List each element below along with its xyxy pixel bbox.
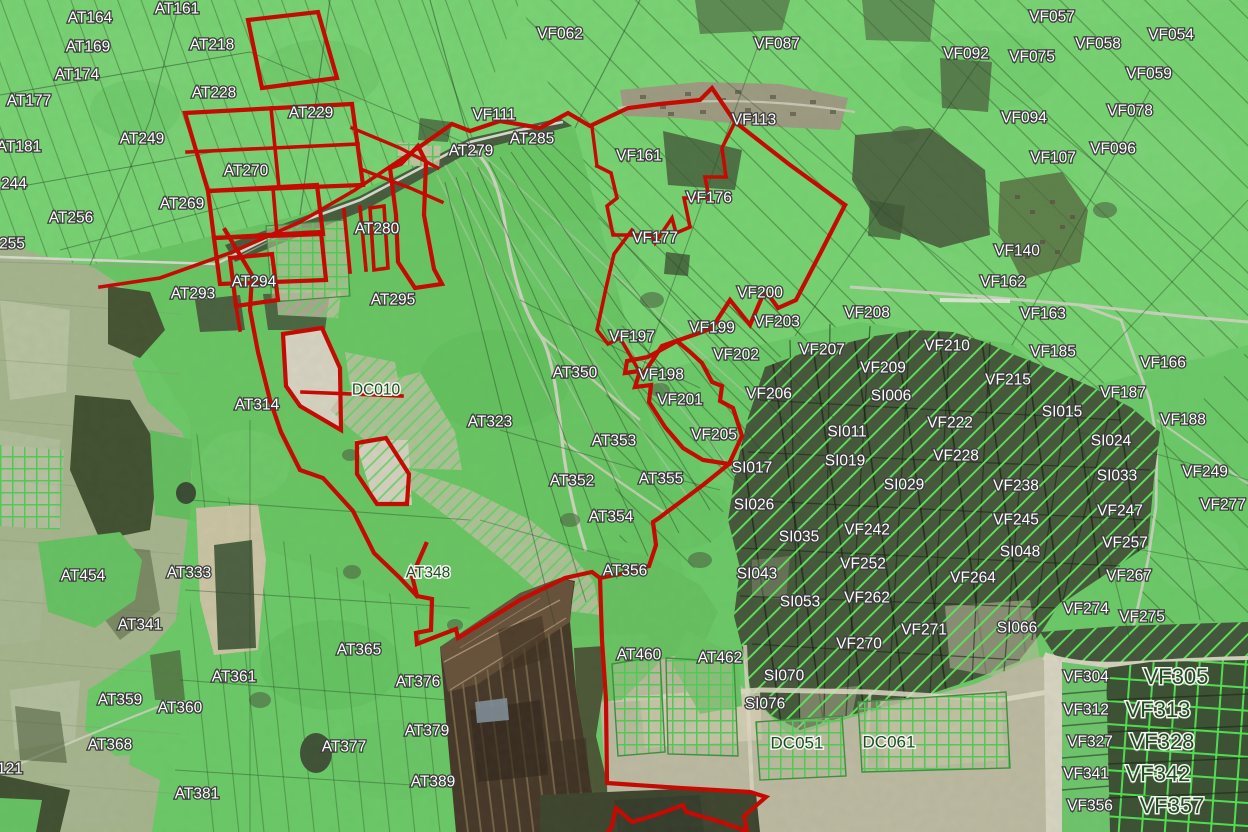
svg-text:VF262: VF262 bbox=[844, 590, 890, 607]
svg-text:SI066: SI066 bbox=[997, 620, 1038, 637]
svg-text:VF327: VF327 bbox=[1067, 734, 1113, 751]
svg-text:VF206: VF206 bbox=[746, 386, 792, 403]
svg-text:SI026: SI026 bbox=[734, 497, 775, 514]
svg-text:VF054: VF054 bbox=[1148, 27, 1194, 44]
svg-text:VF313: VF313 bbox=[1126, 697, 1191, 722]
svg-text:AT350: AT350 bbox=[553, 365, 598, 382]
svg-text:VF277: VF277 bbox=[1200, 497, 1246, 514]
svg-text:SI076: SI076 bbox=[745, 696, 786, 713]
svg-text:AT269: AT269 bbox=[160, 196, 205, 213]
svg-text:VF249: VF249 bbox=[1182, 464, 1228, 481]
svg-text:VF059: VF059 bbox=[1126, 66, 1172, 83]
svg-text:AT355: AT355 bbox=[639, 471, 684, 488]
svg-text:VF245: VF245 bbox=[993, 512, 1039, 529]
svg-text:AT229: AT229 bbox=[289, 105, 334, 122]
svg-text:SI043: SI043 bbox=[737, 566, 778, 583]
svg-text:VF205: VF205 bbox=[691, 427, 737, 444]
svg-text:AT389: AT389 bbox=[411, 774, 456, 791]
svg-text:VF274: VF274 bbox=[1063, 601, 1109, 618]
svg-text:AT177: AT177 bbox=[7, 93, 52, 110]
svg-text:VF305: VF305 bbox=[1144, 664, 1209, 689]
svg-text:VF215: VF215 bbox=[985, 372, 1031, 389]
svg-text:AT454: AT454 bbox=[61, 568, 106, 585]
svg-text:VF201: VF201 bbox=[657, 392, 703, 409]
svg-text:VF222: VF222 bbox=[927, 415, 973, 432]
svg-text:AT295: AT295 bbox=[371, 292, 416, 309]
svg-text:VF312: VF312 bbox=[1063, 702, 1109, 719]
svg-text:AT294: AT294 bbox=[232, 274, 277, 291]
svg-text:VF075: VF075 bbox=[1009, 49, 1055, 66]
svg-text:VF113: VF113 bbox=[732, 112, 777, 129]
svg-text:VF078: VF078 bbox=[1107, 103, 1153, 120]
svg-text:VF087: VF087 bbox=[754, 36, 800, 53]
svg-text:AT228: AT228 bbox=[192, 85, 237, 102]
svg-text:SI019: SI019 bbox=[825, 453, 866, 470]
svg-text:AT333: AT333 bbox=[167, 565, 212, 582]
svg-text:DC061: DC061 bbox=[863, 733, 916, 752]
svg-text:DC051: DC051 bbox=[771, 734, 824, 753]
svg-text:VF342: VF342 bbox=[1126, 761, 1191, 786]
svg-text:VF166: VF166 bbox=[1140, 355, 1186, 372]
svg-text:VF199: VF199 bbox=[689, 320, 735, 337]
svg-text:AT174: AT174 bbox=[55, 67, 100, 84]
svg-text:AT379: AT379 bbox=[405, 723, 450, 740]
svg-text:SI048: SI048 bbox=[1000, 544, 1041, 561]
svg-text:VF197: VF197 bbox=[609, 329, 655, 346]
svg-text:AT341: AT341 bbox=[118, 617, 163, 634]
svg-text:VF096: VF096 bbox=[1090, 141, 1136, 158]
svg-text:SI033: SI033 bbox=[1097, 468, 1138, 485]
svg-text:VF198: VF198 bbox=[638, 367, 684, 384]
svg-text:AT164: AT164 bbox=[68, 10, 113, 27]
svg-text:VF252: VF252 bbox=[840, 556, 886, 573]
svg-text:VF202: VF202 bbox=[713, 347, 759, 364]
svg-text:AT270: AT270 bbox=[224, 163, 269, 180]
svg-text:VF176: VF176 bbox=[686, 190, 732, 207]
svg-text:VF356: VF356 bbox=[1067, 798, 1113, 815]
svg-text:121: 121 bbox=[0, 761, 23, 778]
svg-text:AT361: AT361 bbox=[212, 669, 257, 686]
svg-text:VF062: VF062 bbox=[537, 26, 583, 43]
svg-text:VF200: VF200 bbox=[737, 285, 783, 302]
svg-text:VF238: VF238 bbox=[993, 478, 1039, 495]
svg-text:AT377: AT377 bbox=[322, 739, 367, 756]
svg-text:VF228: VF228 bbox=[933, 448, 979, 465]
svg-text:VF094: VF094 bbox=[1001, 110, 1047, 127]
svg-text:VF185: VF185 bbox=[1030, 344, 1076, 361]
svg-text:AT169: AT169 bbox=[66, 39, 111, 56]
svg-text:VF057: VF057 bbox=[1029, 9, 1075, 26]
svg-text:AT368: AT368 bbox=[88, 737, 133, 754]
svg-text:AT249: AT249 bbox=[120, 131, 165, 148]
svg-text:VF247: VF247 bbox=[1097, 503, 1143, 520]
svg-text:AT279: AT279 bbox=[449, 143, 494, 160]
svg-text:VF270: VF270 bbox=[836, 636, 882, 653]
svg-text:AT293: AT293 bbox=[171, 286, 216, 303]
svg-text:SI029: SI029 bbox=[884, 477, 925, 494]
svg-text:SI035: SI035 bbox=[779, 529, 820, 546]
svg-text:SI070: SI070 bbox=[764, 668, 805, 685]
svg-text:244: 244 bbox=[1, 176, 27, 193]
svg-text:VF357: VF357 bbox=[1140, 793, 1205, 818]
svg-text:VF177: VF177 bbox=[632, 230, 678, 247]
svg-text:AT360: AT360 bbox=[158, 700, 203, 717]
svg-text:SI015: SI015 bbox=[1042, 404, 1083, 421]
svg-text:AT256: AT256 bbox=[49, 210, 94, 227]
svg-text:VF203: VF203 bbox=[754, 314, 800, 331]
svg-text:VF328: VF328 bbox=[1130, 729, 1195, 754]
svg-text:VF163: VF163 bbox=[1020, 306, 1066, 323]
svg-text:AT460: AT460 bbox=[617, 647, 662, 664]
svg-text:VF267: VF267 bbox=[1106, 568, 1152, 585]
svg-text:SI011: SI011 bbox=[827, 424, 866, 441]
svg-text:VF207: VF207 bbox=[799, 342, 845, 359]
svg-text:VF210: VF210 bbox=[924, 338, 970, 355]
svg-text:VF188: VF188 bbox=[1160, 412, 1206, 429]
svg-text:VF304: VF304 bbox=[1063, 669, 1109, 686]
svg-text:SI024: SI024 bbox=[1091, 433, 1132, 450]
svg-text:VF209: VF209 bbox=[860, 360, 906, 377]
svg-text:VF187: VF187 bbox=[1100, 385, 1146, 402]
svg-text:DC010: DC010 bbox=[352, 382, 401, 399]
svg-text:AT218: AT218 bbox=[190, 37, 235, 54]
svg-text:VF275: VF275 bbox=[1119, 609, 1165, 626]
svg-text:AT181: AT181 bbox=[0, 139, 41, 156]
svg-text:SI053: SI053 bbox=[780, 594, 821, 611]
svg-text:VF058: VF058 bbox=[1075, 36, 1121, 53]
svg-text:VF140: VF140 bbox=[994, 243, 1040, 260]
svg-text:AT356: AT356 bbox=[603, 563, 648, 580]
svg-text:VF264: VF264 bbox=[950, 570, 996, 587]
svg-text:VF271: VF271 bbox=[901, 622, 947, 639]
svg-text:AT314: AT314 bbox=[235, 397, 280, 414]
svg-text:VF257: VF257 bbox=[1102, 535, 1148, 552]
svg-text:255: 255 bbox=[0, 236, 25, 253]
svg-text:AT323: AT323 bbox=[468, 414, 513, 431]
svg-text:VF208: VF208 bbox=[844, 305, 890, 322]
svg-text:VF162: VF162 bbox=[980, 274, 1026, 291]
svg-text:AT462: AT462 bbox=[698, 650, 743, 667]
svg-text:VF107: VF107 bbox=[1030, 150, 1076, 167]
svg-text:VF242: VF242 bbox=[844, 522, 890, 539]
svg-text:AT161: AT161 bbox=[155, 1, 200, 18]
svg-text:AT354: AT354 bbox=[589, 509, 634, 526]
svg-text:AT348: AT348 bbox=[406, 565, 451, 582]
svg-text:AT376: AT376 bbox=[396, 674, 441, 691]
svg-text:AT285: AT285 bbox=[510, 131, 555, 148]
svg-text:AT353: AT353 bbox=[592, 433, 637, 450]
svg-text:AT381: AT381 bbox=[175, 786, 220, 803]
svg-text:AT359: AT359 bbox=[98, 692, 143, 709]
svg-text:SI017: SI017 bbox=[732, 460, 773, 477]
svg-text:VF161: VF161 bbox=[616, 148, 662, 165]
svg-text:AT365: AT365 bbox=[337, 642, 382, 659]
svg-text:AT280: AT280 bbox=[355, 221, 400, 238]
svg-text:SI006: SI006 bbox=[871, 388, 912, 405]
svg-text:VF341: VF341 bbox=[1063, 766, 1109, 783]
svg-text:AT352: AT352 bbox=[550, 473, 595, 490]
svg-text:VF092: VF092 bbox=[943, 46, 989, 63]
svg-text:VF111: VF111 bbox=[472, 107, 515, 124]
